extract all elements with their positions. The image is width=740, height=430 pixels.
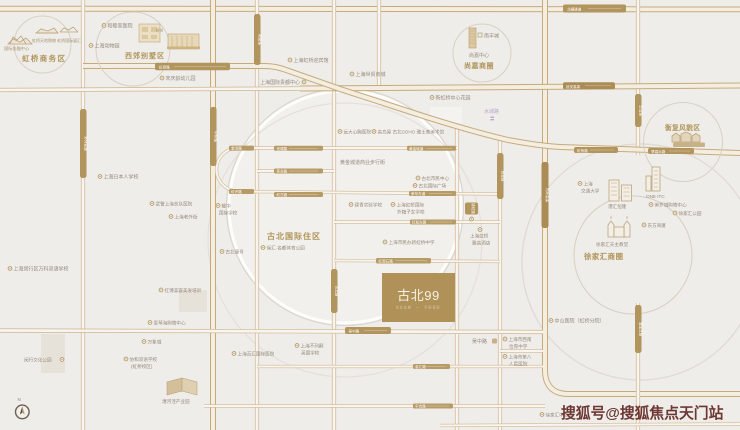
svg-text:〓: 〓 xyxy=(490,116,495,121)
svg-text:上海市民办新虹桥中学: 上海市民办新虹桥中学 xyxy=(389,239,435,246)
svg-text:中环路: 中环路 xyxy=(214,131,219,142)
svg-text:吴中路: 吴中路 xyxy=(349,328,360,333)
svg-text:虹桥商务区: 虹桥商务区 xyxy=(22,54,66,63)
svg-text:红松东路: 红松东路 xyxy=(412,220,427,225)
svg-text:西郊别墅区: 西郊别墅区 xyxy=(125,51,165,60)
svg-text:内环高架: 内环高架 xyxy=(545,188,550,203)
svg-text:国际学校: 国际学校 xyxy=(219,210,238,217)
svg-text:荣华东道: 荣华东道 xyxy=(411,191,426,196)
svg-text:企业总部 — 平层官邸: 企业总部 — 平层官邸 xyxy=(395,305,440,310)
svg-text:虹古路: 虹古路 xyxy=(277,192,288,197)
svg-text:东方商厦: 东方商厦 xyxy=(648,222,667,229)
svg-text:上海虹桥迎宾馆: 上海虹桥迎宾馆 xyxy=(294,57,329,64)
svg-text:武警上海总队医院: 武警上海总队医院 xyxy=(156,201,193,208)
svg-text:外籍子女学校: 外籍子女学校 xyxy=(397,209,425,216)
svg-text:虹桥天地购物 虹桥国际展汇: 虹桥天地购物 虹桥国际展汇 xyxy=(32,37,81,43)
svg-text:高岛屋 古北SOHO 雅士荟美术馆: 高岛屋 古北SOHO 雅士荟美术馆 xyxy=(378,129,445,136)
svg-text:黄金城道商业步行街: 黄金城道商业步行街 xyxy=(340,159,385,166)
svg-text:爱琴海购物中心: 爱琴海购物中心 xyxy=(154,320,187,327)
svg-text:桂菁路: 桂菁路 xyxy=(501,171,506,182)
svg-text:黄金城道: 黄金城道 xyxy=(409,146,424,151)
svg-text:肇嘉浜路: 肇嘉浜路 xyxy=(651,149,666,154)
svg-text:英国学校: 英国学校 xyxy=(301,350,320,357)
svg-text:ONE ITC: ONE ITC xyxy=(646,194,665,199)
svg-text:北横通道: 北横通道 xyxy=(567,7,582,12)
svg-text:耀中: 耀中 xyxy=(222,203,232,210)
svg-text:衡复风貌区: 衡复风貌区 xyxy=(665,123,700,132)
svg-text:南丰城: 南丰城 xyxy=(484,33,499,40)
svg-text:虹许路: 虹许路 xyxy=(231,189,242,194)
svg-text:金浜路: 金浜路 xyxy=(231,146,242,151)
svg-text:(虹桥校区): (虹桥校区) xyxy=(131,363,153,370)
svg-text:哈密路: 哈密路 xyxy=(258,34,263,45)
svg-text:红博美容美发培训: 红博美容美发培训 xyxy=(165,287,202,294)
svg-text:漕河泾产业园: 漕河泾产业园 xyxy=(162,398,190,405)
svg-text:万象城: 万象城 xyxy=(148,339,162,346)
svg-text:虹桥路: 虹桥路 xyxy=(577,148,588,153)
svg-text:古北壹号: 古北壹号 xyxy=(226,249,245,256)
svg-text:和睦家医院: 和睦家医院 xyxy=(108,23,133,30)
svg-text:中山医院（虹桥分院）: 中山医院（虹桥分院） xyxy=(555,318,605,325)
svg-text:徐家汇公园: 徐家汇公园 xyxy=(679,210,702,217)
svg-text:上海国际贵都中心: 上海国际贵都中心 xyxy=(260,79,300,86)
svg-text:上海: 上海 xyxy=(584,181,594,188)
svg-text:尚嘉商圈: 尚嘉商圈 xyxy=(464,61,494,70)
svg-text:外环高速: 外环高速 xyxy=(84,136,89,151)
svg-text:上海不列颠: 上海不列颠 xyxy=(301,343,324,350)
svg-text:华山路: 华山路 xyxy=(639,105,644,116)
svg-text:保汇·名都体育公园: 保汇·名都体育公园 xyxy=(267,245,306,252)
svg-text:上海闵行区万科双语学校: 上海闵行区万科双语学校 xyxy=(14,266,69,273)
svg-text:闵行文化公园: 闵行文化公园 xyxy=(24,357,52,364)
svg-text:搜狐号@搜狐焦点天门站: 搜狐号@搜狐焦点天门站 xyxy=(561,404,724,422)
svg-text:安顺路: 安顺路 xyxy=(277,146,288,151)
svg-text:红宝石路: 红宝石路 xyxy=(379,258,394,263)
svg-text:上海老外街: 上海老外街 xyxy=(175,214,198,221)
svg-text:古北国际住区: 古北国际住区 xyxy=(267,231,321,241)
svg-text:雅高酒店: 雅高酒店 xyxy=(472,240,491,247)
svg-text:上海世贸商城: 上海世贸商城 xyxy=(356,71,386,78)
svg-text:徐家汇商圈: 徐家汇商圈 xyxy=(583,252,623,261)
svg-text:上海市第八: 上海市第八 xyxy=(509,354,532,361)
svg-text:美罗城购物中心: 美罗城购物中心 xyxy=(655,202,688,209)
svg-text:尚嘉中心: 尚嘉中心 xyxy=(469,52,489,59)
svg-text:宋庆龄幼儿园: 宋庆龄幼儿园 xyxy=(166,75,196,82)
svg-text:古北国际广场: 古北国际广场 xyxy=(419,183,447,190)
svg-text:协和双语学校: 协和双语学校 xyxy=(130,356,158,363)
svg-text:上海市西南: 上海市西南 xyxy=(509,336,532,343)
svg-text:上海虹桥国际: 上海虹桥国际 xyxy=(397,202,425,209)
svg-text:古北市民中心: 古北市民中心 xyxy=(422,175,450,182)
svg-text:古北99: 古北99 xyxy=(397,288,439,303)
svg-text:港汇恒隆: 港汇恒隆 xyxy=(608,203,627,210)
svg-text:上海百汇国际医院: 上海百汇国际医院 xyxy=(238,351,275,358)
svg-text:榕悦: 榕悦 xyxy=(156,28,163,33)
svg-text:姚虹路: 姚虹路 xyxy=(471,203,476,214)
svg-text:远大心胸医院: 远大心胸医院 xyxy=(344,129,372,136)
svg-text:古北路: 古北路 xyxy=(335,286,340,297)
svg-text:延安高架: 延安高架 xyxy=(566,84,581,89)
svg-text:新虹桥中心花园: 新虹桥中心花园 xyxy=(436,95,471,102)
svg-text:建青实验学校: 建青实验学校 xyxy=(355,202,383,209)
svg-text:N: N xyxy=(18,397,21,402)
svg-text:虹桥路: 虹桥路 xyxy=(159,65,170,70)
svg-text:漕溪北路: 漕溪北路 xyxy=(639,322,644,337)
svg-text:平吉路: 平吉路 xyxy=(415,404,426,409)
svg-text:水城路: 水城路 xyxy=(484,108,499,115)
svg-text:国际金融中心: 国际金融中心 xyxy=(4,45,30,52)
svg-text:上海动物园: 上海动物园 xyxy=(95,43,120,50)
svg-text:茅台路: 茅台路 xyxy=(277,169,288,174)
svg-text:徐家汇天主教堂: 徐家汇天主教堂 xyxy=(596,241,629,248)
svg-text:人民医院: 人民医院 xyxy=(509,361,528,368)
svg-text:金汇路: 金汇路 xyxy=(415,364,426,369)
svg-text:位育中学: 位育中学 xyxy=(509,343,528,350)
svg-text:上海日本人学校: 上海日本人学校 xyxy=(104,174,139,181)
svg-text:吴中路: 吴中路 xyxy=(472,338,487,345)
svg-text:交通大学: 交通大学 xyxy=(581,188,600,195)
svg-text:上海虹桥: 上海虹桥 xyxy=(470,233,489,240)
